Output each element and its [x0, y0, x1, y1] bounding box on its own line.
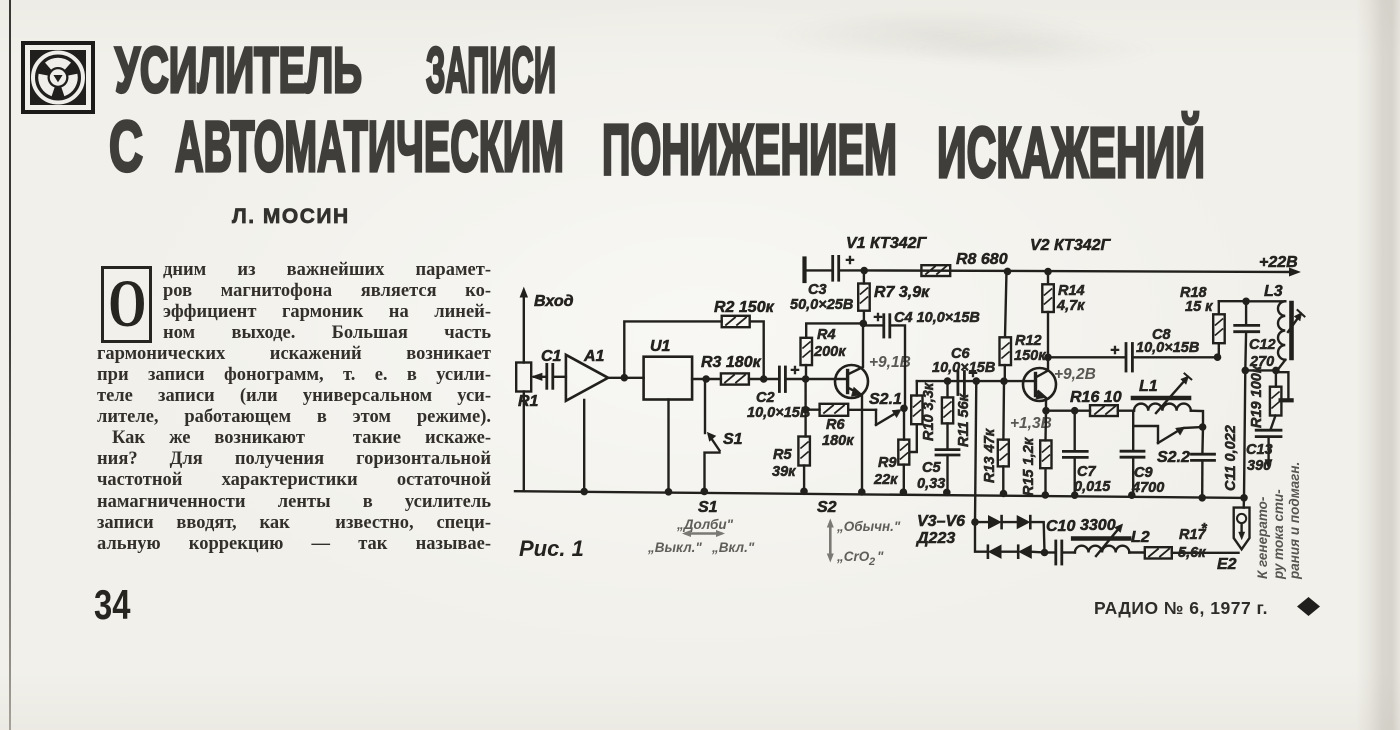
svg-text:С4 10,0×15В: С4 10,0×15В	[894, 310, 980, 326]
svg-text:+: +	[873, 309, 882, 326]
svg-text:0,015: 0,015	[1074, 479, 1111, 495]
svg-text:*: *	[1201, 521, 1208, 537]
svg-text:С3: С3	[808, 282, 827, 298]
svg-text:4,7к: 4,7к	[1056, 298, 1085, 314]
svg-text:С5: С5	[922, 460, 941, 476]
svg-text:R2 150к: R2 150к	[714, 299, 775, 316]
svg-text:S1: S1	[698, 499, 718, 516]
svg-text:R14: R14	[1058, 283, 1085, 299]
svg-text:50,0×25В: 50,0×25В	[790, 297, 853, 313]
svg-text:4700: 4700	[1131, 480, 1164, 496]
svg-text:Д223: Д223	[915, 530, 955, 547]
svg-text:+22В: +22В	[1259, 254, 1298, 271]
svg-text:R4: R4	[817, 327, 836, 343]
svg-text:R9: R9	[878, 455, 897, 471]
svg-text:С1: С1	[541, 348, 562, 365]
svg-text:„CrO: „CrO	[836, 549, 870, 564]
svg-text:V2 КТ342Г: V2 КТ342Г	[1030, 237, 1112, 254]
svg-text:S2: S2	[817, 499, 837, 516]
svg-text:R16 10: R16 10	[1070, 389, 1122, 406]
svg-text:390: 390	[1247, 458, 1271, 474]
svg-text:R8 680: R8 680	[956, 251, 1008, 268]
svg-text:R7 3,9к: R7 3,9к	[874, 284, 930, 301]
svg-text:рания и подмагн.: рания и подмагн.	[1287, 462, 1302, 580]
svg-text:15 к: 15 к	[1185, 299, 1213, 315]
svg-text:R13 47к: R13 47к	[982, 428, 998, 483]
svg-text:Рис. 1: Рис. 1	[519, 536, 584, 561]
svg-text:R1: R1	[518, 393, 539, 410]
svg-text:С13: С13	[1246, 442, 1273, 458]
svg-text:С12: С12	[1249, 337, 1276, 353]
svg-text:К генерато-: К генерато-	[1255, 496, 1270, 579]
svg-text:R19 100к: R19 100к	[1249, 365, 1265, 428]
svg-text:„Обычн.": „Обычн."	[836, 519, 901, 534]
svg-text:L1: L1	[1139, 378, 1158, 395]
svg-text:180к: 180к	[822, 433, 854, 449]
svg-text:39к: 39к	[772, 464, 796, 480]
svg-text:С11 0,022: С11 0,022	[1223, 425, 1239, 491]
svg-text:„Выкл.": „Выкл."	[647, 540, 702, 555]
svg-text:С2: С2	[756, 390, 775, 406]
svg-text:+: +	[790, 362, 799, 379]
svg-text:„Вкл.": „Вкл."	[711, 540, 755, 555]
svg-text:V1 КТ342Г: V1 КТ342Г	[846, 235, 928, 252]
svg-text:ру тока сти-: ру тока сти-	[1271, 489, 1286, 580]
svg-text:+9,2В: +9,2В	[1054, 366, 1096, 383]
svg-text:С10: С10	[1046, 518, 1075, 535]
svg-text:R5: R5	[773, 447, 792, 463]
svg-text:R3 180к: R3 180к	[701, 354, 762, 371]
svg-text:10,0×15В: 10,0×15В	[932, 360, 995, 376]
svg-text:10,0×15В: 10,0×15В	[747, 405, 810, 421]
svg-text:V3–V6: V3–V6	[917, 513, 965, 530]
svg-text:С7: С7	[1077, 464, 1096, 480]
svg-text:10,0×15В: 10,0×15В	[1136, 340, 1199, 356]
svg-text:+: +	[845, 252, 854, 269]
svg-text:2: 2	[868, 556, 875, 568]
svg-text:„Долби": „Долби"	[676, 517, 734, 532]
svg-text:0,33: 0,33	[917, 476, 945, 492]
svg-text:L3: L3	[1264, 283, 1283, 300]
svg-text:R11 56к: R11 56к	[956, 393, 972, 447]
svg-text:S1: S1	[723, 431, 743, 448]
svg-text:С9: С9	[1134, 465, 1153, 481]
svg-text:22к: 22к	[873, 472, 898, 488]
svg-text:U1: U1	[650, 338, 671, 355]
svg-text:5,6к: 5,6к	[1178, 545, 1206, 561]
svg-text:S2.1: S2.1	[869, 391, 902, 408]
svg-text:S2.2: S2.2	[1157, 449, 1190, 466]
svg-text:+: +	[1110, 342, 1119, 359]
svg-text:R15 1,2к: R15 1,2к	[1021, 437, 1037, 496]
svg-text:": "	[877, 549, 884, 564]
svg-text:R12: R12	[1015, 333, 1042, 349]
svg-text:3300: 3300	[1080, 517, 1116, 534]
svg-text:E2: E2	[1217, 556, 1237, 573]
svg-text:R6: R6	[826, 417, 845, 433]
svg-text:200к: 200к	[813, 344, 846, 360]
svg-text:Вход: Вход	[534, 293, 574, 310]
svg-text:L2: L2	[1131, 529, 1150, 546]
svg-text:R10 3,3к: R10 3,3к	[921, 382, 937, 441]
svg-text:А1: А1	[583, 348, 605, 365]
svg-text:150к: 150к	[1014, 348, 1046, 364]
